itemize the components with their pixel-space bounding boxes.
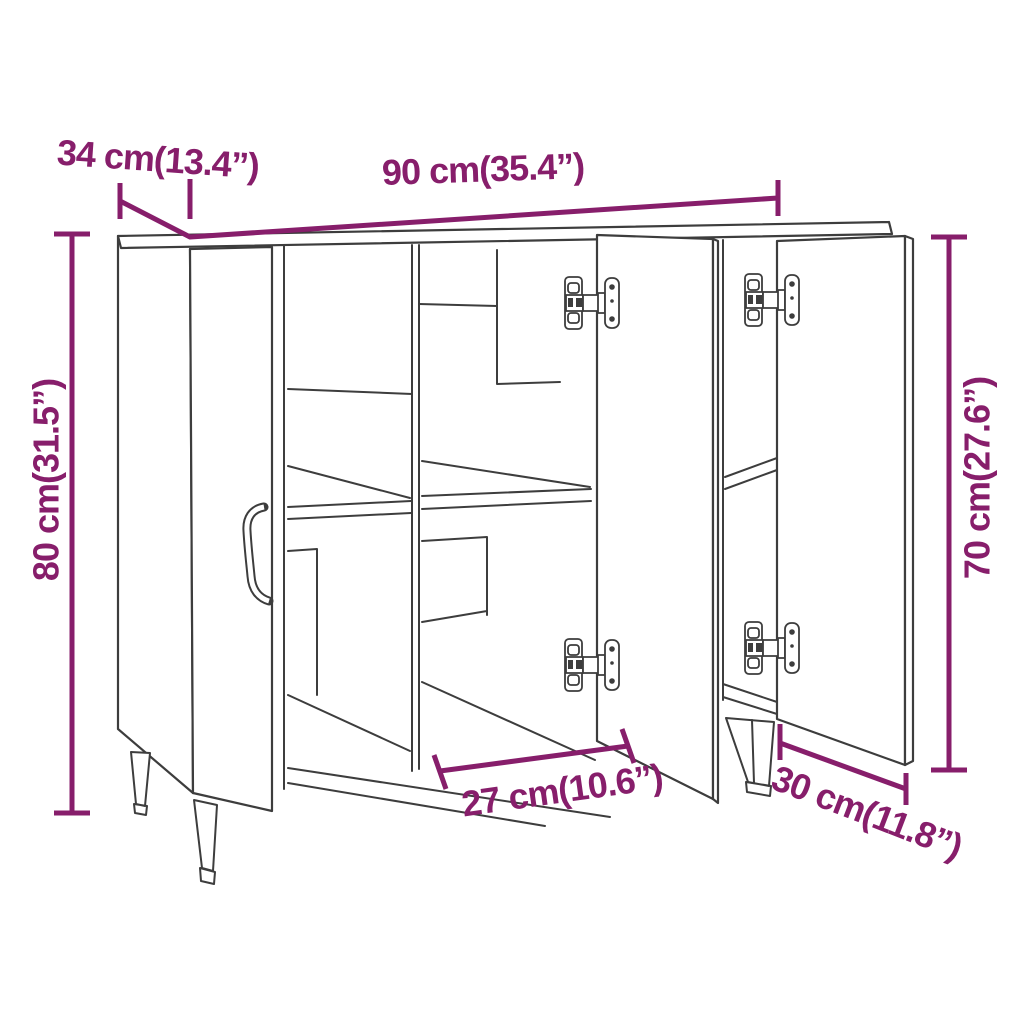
right-compartment-upper-back: [419, 250, 560, 384]
right-compartment-lower-back: [422, 537, 487, 622]
left-door-panel: [190, 247, 272, 811]
middle-door-edge: [713, 239, 718, 803]
left-compartment-lower-back: [288, 549, 317, 695]
door-hinge-icon: [565, 639, 619, 691]
right-compartment-floor: [422, 682, 595, 760]
cabinet-leg: [131, 752, 150, 815]
left-door-closed: [190, 247, 272, 811]
dimension-label-depth: 34 cm(13.4”): [56, 132, 260, 187]
cabinet-leg: [726, 718, 774, 796]
cabinet-left-side-panel: [118, 236, 193, 793]
door-hinge-icon: [745, 274, 799, 326]
center-divider: [412, 245, 419, 771]
dimension-label-width: 90 cm(35.4”): [381, 145, 584, 193]
product-dimension-image: 34 cm(13.4”) 90 cm(35.4”) 80 cm(31.5”) 7…: [0, 0, 1024, 1024]
dimension-label-height-left: 80 cm(31.5”): [26, 379, 67, 581]
dimension-label-height-right: 70 cm(27.6”): [957, 377, 998, 579]
dimension-line: [120, 198, 778, 237]
side-compartment-floor: [723, 684, 777, 714]
right-compartment-shelf: [422, 461, 591, 509]
dimension-diagram-svg: 34 cm(13.4”) 90 cm(35.4”) 80 cm(31.5”) 7…: [0, 0, 1024, 1024]
cabinet-leg: [194, 800, 217, 884]
side-compartment-shelf: [725, 458, 777, 489]
left-compartment-shelf: [288, 466, 411, 519]
left-compartment-floor: [288, 695, 410, 751]
door-hinge-icon: [565, 277, 619, 329]
door-hinge-icon: [745, 622, 799, 674]
right-door-edge: [905, 236, 913, 765]
left-compartment-back-panel: [288, 389, 412, 394]
